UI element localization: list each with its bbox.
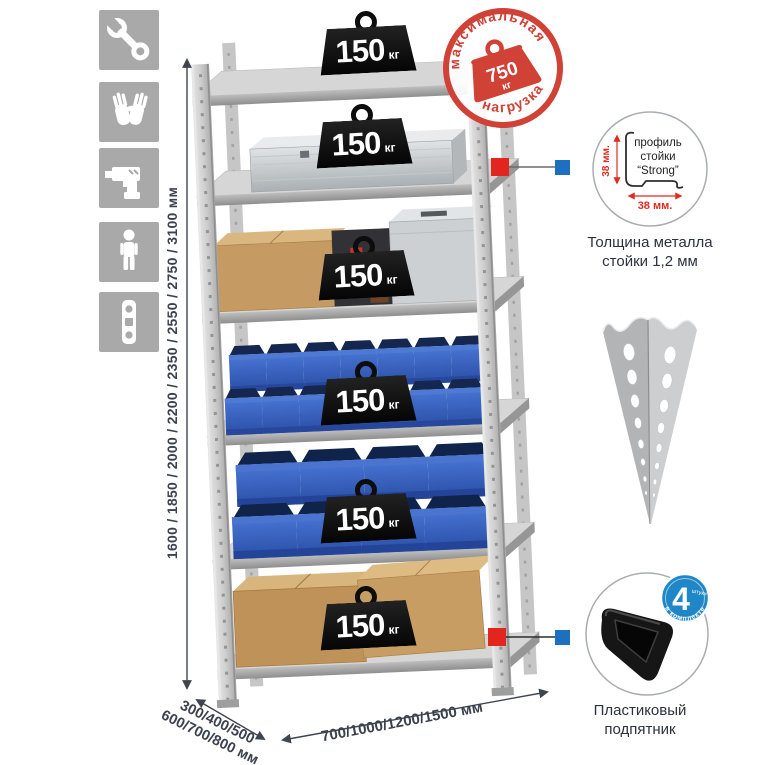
badge-value: 150 <box>335 502 385 536</box>
foot-detail-circle: 4 штуки в комплекте <box>586 573 709 695</box>
shelf-load-badge: 150кг <box>315 234 414 301</box>
profile-text-line3: “Strong” <box>637 165 679 177</box>
badge-unit: кг <box>384 140 396 155</box>
callout-marker-red <box>491 158 509 176</box>
profile-caption: Толщина металла стойки 1,2 мм <box>565 234 735 272</box>
badge-unit: кг <box>388 622 400 637</box>
max-load-stamp: максимальная нагрузка 750 кг <box>430 0 575 140</box>
profile-dim-vertical: 38 мм. <box>601 145 612 177</box>
person-icon <box>99 222 159 282</box>
callout-top <box>491 158 570 176</box>
badge-value: 150 <box>335 34 385 68</box>
foot-caption-line1: Пластиковый <box>555 702 725 721</box>
callout-marker-blue <box>555 160 570 175</box>
badge-value: 150 <box>335 609 385 643</box>
wrench-icon <box>99 10 159 70</box>
callout-marker-red <box>488 628 506 646</box>
profile-text-line2: стойки <box>640 151 675 163</box>
profile-text-line1: профиль <box>634 137 682 149</box>
badge-value: 150 <box>335 384 385 418</box>
height-dimension-label: 1600 / 1850 / 2000 / 2200 / 2350 / 2550 … <box>164 187 180 559</box>
foot-caption-line2: подпятник <box>555 721 725 740</box>
shelf-load-badge: 150кг <box>317 359 416 426</box>
shelf-load-badge: 150кг <box>317 9 416 76</box>
shelving-product-diagram: максимальная нагрузка 750 кг 38 мм. 38 м… <box>0 0 765 765</box>
badge-unit: кг <box>386 272 398 287</box>
shelf-load-badge: 150кг <box>313 102 412 169</box>
corner-post-image <box>603 318 697 524</box>
profile-detail-circle: 38 мм. 38 мм. профиль стойки “Strong” <box>593 112 707 226</box>
level-icon <box>99 292 159 352</box>
shelf-load-badge: 150кг <box>317 584 416 651</box>
quantity-badge: 4 штуки в комплекте <box>661 574 709 623</box>
badge-number: 4 <box>672 581 690 617</box>
badge-unit: кг <box>388 47 400 62</box>
badge-value: 150 <box>333 259 383 293</box>
callout-marker-blue <box>555 630 570 645</box>
badge-unit: кг <box>388 515 400 530</box>
profile-caption-line2: стойки 1,2 мм <box>565 253 735 272</box>
foot-caption: Пластиковый подпятник <box>555 702 725 740</box>
shelf-load-badge: 150кг <box>317 477 416 544</box>
badge-value: 150 <box>331 127 381 161</box>
drill-icon <box>99 148 159 208</box>
badge-unit: кг <box>388 397 400 412</box>
profile-caption-line1: Толщина металла <box>565 234 735 253</box>
gloves-icon <box>99 82 159 142</box>
profile-dim-horizontal: 38 мм. <box>638 200 673 212</box>
